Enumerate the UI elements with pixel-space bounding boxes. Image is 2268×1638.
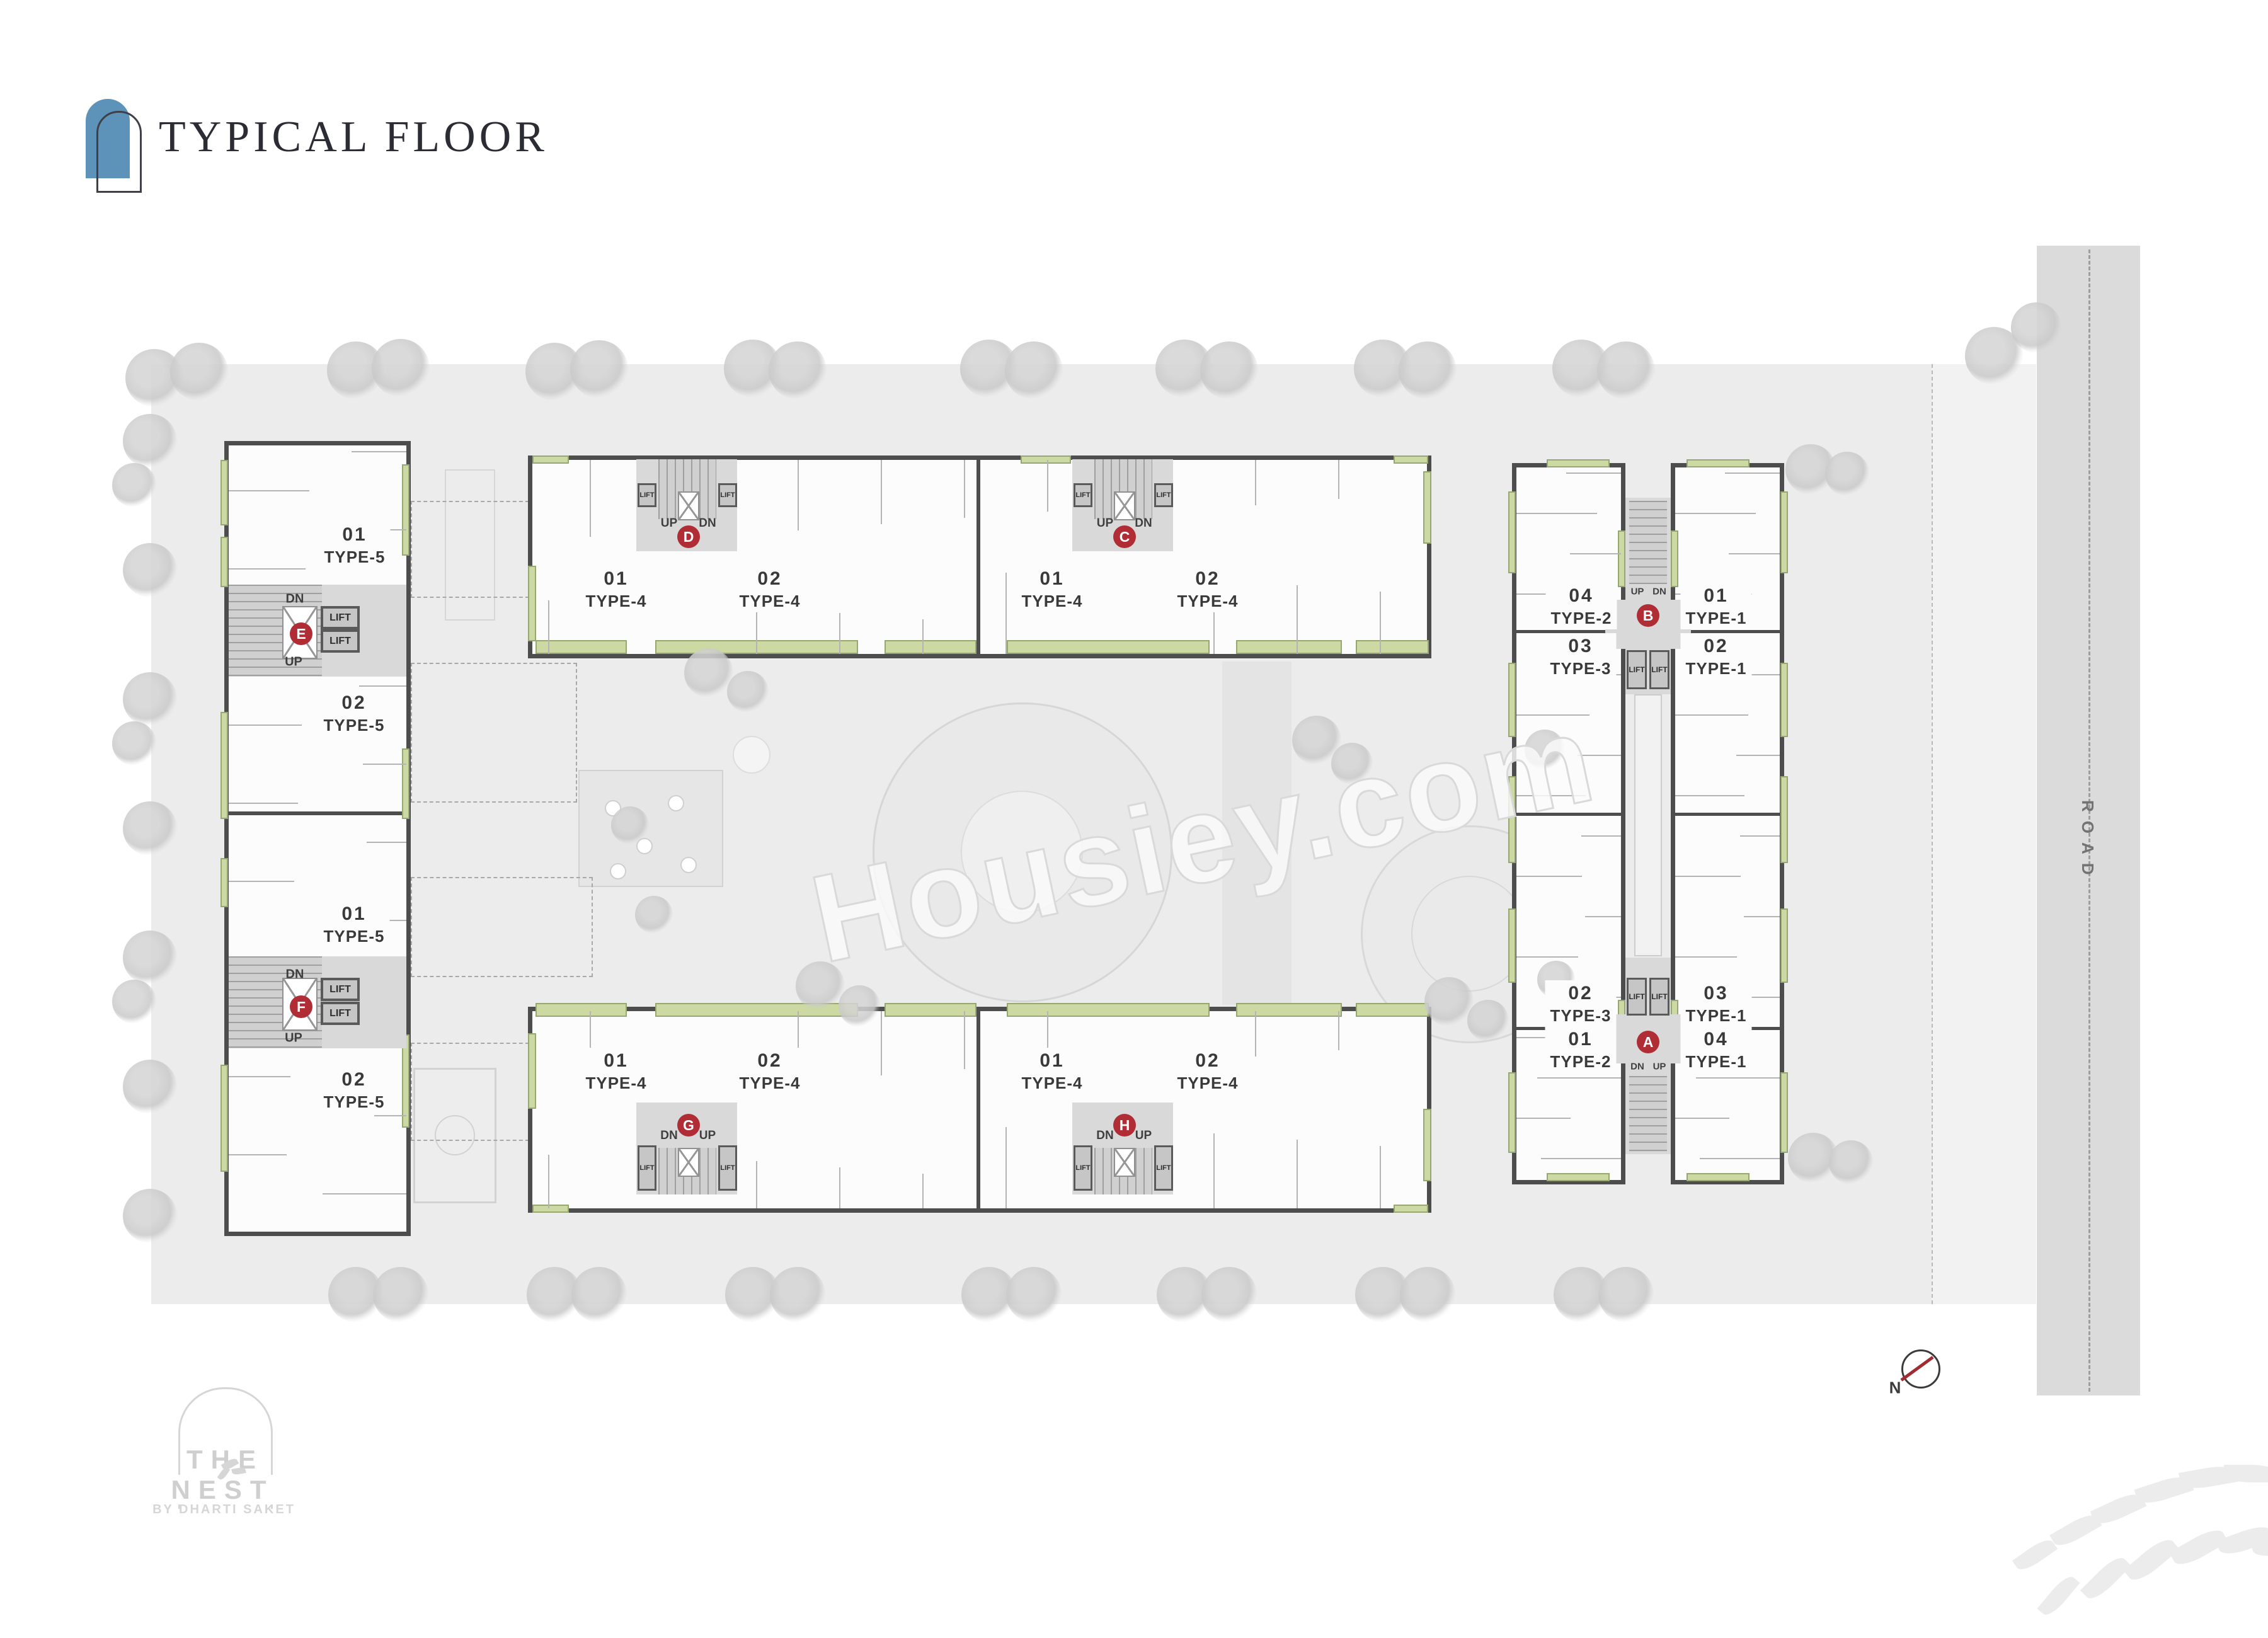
unit-number: 03: [1685, 982, 1746, 1005]
balcony-strip: [532, 455, 569, 464]
partition-line: [229, 1076, 290, 1077]
partition-line: [964, 460, 965, 518]
partition-line: [922, 1174, 924, 1208]
balcony-strip: [1423, 471, 1431, 544]
tree-icon: [112, 721, 156, 765]
unit-label: 02 TYPE-5: [318, 690, 389, 736]
dn-label: DN: [286, 968, 304, 982]
balcony-strip: [1394, 1205, 1428, 1213]
lift-box: LIFT: [321, 978, 360, 1001]
logo-tagline: BY DHARTI SAKET: [134, 1503, 314, 1517]
compass-icon: [1901, 1349, 1940, 1389]
partition-line: [839, 1167, 840, 1208]
unit-type: TYPE-5: [323, 1092, 384, 1113]
balcony-strip: [1547, 459, 1610, 467]
unit-number: 02: [1550, 982, 1611, 1005]
up-label: UP: [285, 655, 302, 670]
tree-icon: [123, 543, 177, 597]
lift-box: LIFT: [321, 606, 360, 629]
partition-line: [548, 1155, 549, 1208]
tree-icon: [1200, 341, 1258, 399]
unit-number: 02: [323, 1068, 384, 1092]
page-title: TYPICAL FLOOR: [159, 112, 548, 163]
unit-type: TYPE-2: [1550, 1051, 1611, 1072]
unit-type: TYPE-1: [1685, 1005, 1746, 1026]
unit-type: TYPE-4: [739, 591, 800, 612]
tree-icon: [2011, 302, 2061, 353]
balcony-strip: [535, 1003, 627, 1017]
north-label: N: [1889, 1378, 1901, 1398]
lift-box: LIFT: [638, 483, 656, 507]
tree-icon: [1829, 1140, 1873, 1184]
unit-label: 01 TYPE-4: [580, 566, 651, 612]
tree-icon: [571, 1267, 627, 1322]
unit-number: 01: [323, 902, 384, 926]
unit-label: 04 TYPE-1: [1680, 1026, 1751, 1073]
balcony-strip: [402, 464, 409, 556]
partition-line: [881, 460, 882, 524]
stair-well-h: [1114, 1148, 1135, 1177]
tree-icon: [1399, 341, 1457, 399]
lift-box: LIFT: [1154, 1145, 1173, 1191]
lift-box: LIFT: [1627, 978, 1647, 1016]
partition-line: [229, 1154, 287, 1155]
partition-line: [798, 460, 799, 530]
unit-label: 01 TYPE-4: [1016, 1048, 1087, 1094]
partition-line: [548, 600, 549, 654]
unit-label: 01 TYPE-2: [1545, 1026, 1616, 1073]
tree-icon: [1006, 1267, 1062, 1322]
core-badge-c: C: [1113, 525, 1136, 548]
unit-type: TYPE-5: [323, 926, 384, 947]
core-badge-d: D: [677, 525, 700, 548]
partition-line: [359, 685, 406, 687]
partition-line: [1338, 1011, 1339, 1050]
partition-line: [229, 568, 306, 570]
partition-line: [1537, 1077, 1621, 1079]
balcony-strip: [532, 1205, 569, 1213]
lift-box: LIFT: [1074, 483, 1092, 507]
stair-well-c: [1114, 491, 1135, 520]
unit-type: TYPE-4: [1177, 1073, 1238, 1094]
unit-label: 01 TYPE-4: [580, 1048, 651, 1094]
unit-number: 01: [1550, 1028, 1611, 1051]
balcony-strip: [1236, 1003, 1342, 1017]
up-label: UP: [1653, 1062, 1666, 1072]
lift-box: LIFT: [321, 1002, 360, 1025]
unit-type: TYPE-5: [324, 547, 385, 568]
partition-line: [756, 1161, 757, 1208]
partition-line: [352, 451, 406, 452]
up-label: UP: [285, 1031, 302, 1046]
unit-number: 04: [1685, 1028, 1746, 1051]
dn-label: DN: [1096, 1129, 1113, 1143]
core-badge-e: E: [290, 622, 312, 645]
balcony-strip: [528, 566, 536, 641]
balcony-strip: [1508, 491, 1516, 573]
tree-icon: [1825, 452, 1869, 496]
partition-line: [1516, 956, 1578, 958]
unit-type: TYPE-4: [585, 591, 646, 612]
stair-well-g: [678, 1148, 699, 1177]
unit-label: 01 TYPE-5: [318, 901, 389, 948]
lift-box: LIFT: [1649, 978, 1669, 1016]
partition-line: [1516, 513, 1597, 514]
open-terrace-outline: [411, 877, 593, 977]
partition-line: [374, 1115, 406, 1116]
partition-line: [1566, 472, 1621, 474]
partition-line: [1675, 513, 1756, 514]
up-label: UP: [1097, 517, 1113, 530]
unit-label: 02 TYPE-3: [1545, 980, 1616, 1027]
partition-line: [1255, 460, 1256, 505]
partition-line: [1700, 1158, 1780, 1159]
unit-number: 01: [585, 1049, 646, 1073]
partition-line: [1725, 472, 1780, 474]
tree-icon: [112, 463, 156, 507]
balcony-strip: [1356, 1003, 1429, 1017]
dn-label: DN: [286, 592, 304, 607]
balcony-strip: [1547, 1173, 1610, 1181]
partition-line: [1541, 1158, 1621, 1159]
unit-number: 02: [1177, 1049, 1238, 1073]
partition-line: [229, 881, 294, 882]
partition-line: [1380, 1146, 1381, 1208]
unit-label: 01 TYPE-4: [1016, 566, 1087, 612]
core-badge-f: F: [290, 995, 312, 1018]
partition-line: [1005, 1127, 1007, 1208]
balcony-strip: [402, 1034, 409, 1128]
tree-icon: [1400, 1267, 1455, 1322]
tree-icon: [1467, 1000, 1509, 1041]
partition-line: [1696, 1077, 1780, 1079]
tree-icon: [684, 648, 733, 697]
partition-line: [1213, 1133, 1215, 1208]
unit-label: 02 TYPE-4: [734, 566, 805, 612]
partition-line: [756, 607, 757, 654]
partition-line: [1675, 956, 1737, 958]
partition-line: [590, 460, 591, 537]
leaf-decoration-icon: [2012, 1535, 2058, 1574]
lift-box: LIFT: [718, 1145, 737, 1191]
balcony-strip: [402, 748, 409, 819]
tree-icon: [1598, 1267, 1654, 1322]
partition-line: [1047, 460, 1048, 512]
balcony-strip: [220, 712, 228, 819]
tree-icon: [1201, 1267, 1257, 1322]
partition-line: [229, 724, 302, 726]
balcony-strip: [1687, 1173, 1750, 1181]
unit-label: 03 TYPE-1: [1680, 980, 1751, 1027]
balcony-strip: [1007, 640, 1210, 654]
partition-line: [229, 490, 309, 491]
up-label: UP: [661, 517, 677, 530]
unit-label: 02 TYPE-4: [1172, 1048, 1243, 1094]
lift-box: LIFT: [718, 483, 737, 507]
leaf-decoration-icon: [2123, 1534, 2180, 1586]
tree-icon: [123, 414, 177, 468]
stair-a: [1629, 1076, 1667, 1152]
tree-icon: [1597, 341, 1655, 399]
balcony-strip: [220, 1065, 228, 1172]
unit-label: 01 TYPE-5: [319, 522, 390, 568]
balcony-strip: [885, 640, 976, 654]
unit-type: TYPE-4: [1021, 1073, 1082, 1094]
open-terrace-outline: [411, 663, 577, 803]
unit-type: TYPE-4: [1021, 591, 1082, 612]
tree-icon: [123, 931, 177, 985]
partition-line: [363, 764, 406, 765]
unit-number: 01: [324, 523, 385, 547]
unit-divider-wall: [229, 811, 406, 815]
balcony-strip: [220, 858, 228, 907]
floor-plan-page: TYPICAL FLOOR ROAD DN UP E LIFT L: [0, 0, 2268, 1638]
tree-icon: [123, 1189, 177, 1243]
partition-line: [229, 803, 298, 804]
unit-number: 01: [1021, 567, 1082, 591]
unit-type: TYPE-3: [1550, 1005, 1611, 1026]
unit-type: TYPE-5: [323, 715, 384, 736]
unit-number: 01: [585, 567, 646, 591]
partition-line: [1255, 1011, 1256, 1057]
dn-label: DN: [1135, 517, 1152, 530]
partition-line: [367, 842, 406, 843]
lift-box: LIFT: [321, 629, 360, 653]
balcony-strip: [1423, 1109, 1431, 1181]
balcony-strip: [528, 1033, 536, 1109]
balcony-strip: [1394, 455, 1428, 464]
unit-number: 02: [1177, 567, 1238, 591]
balcony-strip: [220, 537, 228, 587]
unit-divider-wall: [976, 455, 980, 658]
leaf-decoration-icon: [2037, 1572, 2080, 1619]
site-right-walkway: [1932, 364, 2036, 1304]
unit-number: 02: [323, 691, 384, 715]
partition-line: [1516, 1118, 1571, 1119]
stair-well-d: [678, 491, 699, 520]
balcony-strip: [220, 460, 228, 525]
partition-line: [1005, 573, 1007, 654]
lift-box: LIFT: [1154, 483, 1173, 507]
partition-line: [1297, 1140, 1298, 1208]
unit-number: 02: [739, 567, 800, 591]
balcony-strip: [1508, 1072, 1516, 1153]
tree-icon: [170, 343, 228, 401]
tree-icon: [1005, 341, 1063, 399]
unit-number: 01: [1021, 1049, 1082, 1073]
partition-line: [1744, 916, 1780, 917]
partition-line: [1748, 997, 1780, 998]
core-badge-a: A: [1637, 1031, 1659, 1053]
balcony-strip: [1687, 459, 1750, 467]
balcony-strip: [1780, 491, 1788, 573]
dn-label: DN: [1630, 1062, 1644, 1072]
tree-icon: [770, 1267, 825, 1322]
tree-icon: [570, 340, 628, 398]
unit-label: 02 TYPE-4: [1172, 566, 1243, 612]
unit-type: TYPE-1: [1685, 1051, 1746, 1072]
tree-icon: [112, 980, 156, 1024]
lift-box: LIFT: [638, 1145, 656, 1191]
balcony-strip: [1780, 1072, 1788, 1153]
dn-label: DN: [699, 517, 716, 530]
core-badge-h: H: [1113, 1114, 1136, 1137]
partition-line: [1675, 1118, 1729, 1119]
balcony-strip: [1021, 455, 1071, 464]
lift-box: LIFT: [1074, 1145, 1092, 1191]
unit-type: TYPE-4: [585, 1073, 646, 1094]
tree-icon: [123, 1060, 177, 1114]
balcony-strip: [1780, 908, 1788, 983]
partition-line: [1570, 553, 1621, 554]
tree-icon: [373, 1267, 428, 1322]
dn-label: DN: [660, 1129, 677, 1143]
up-label: UP: [699, 1129, 716, 1143]
up-label: UP: [1135, 1129, 1152, 1143]
partition-line: [1338, 460, 1339, 499]
arch-door-outline-icon: [96, 111, 142, 193]
partition-line: [323, 1193, 406, 1194]
unit-label: 02 TYPE-5: [318, 1067, 389, 1113]
tree-icon: [769, 341, 827, 399]
leaf-decoration-icon: [2080, 1552, 2131, 1603]
road-label: ROAD: [2081, 800, 2097, 882]
unit-type: TYPE-4: [1177, 591, 1238, 612]
partition-line: [922, 619, 924, 654]
partition-line: [839, 613, 840, 654]
tree-icon: [1424, 977, 1474, 1026]
tree-icon: [123, 801, 177, 856]
tree-icon: [727, 671, 769, 713]
tree-icon: [372, 339, 430, 397]
tree-icon: [123, 672, 177, 726]
balcony-strip: [1780, 663, 1788, 737]
